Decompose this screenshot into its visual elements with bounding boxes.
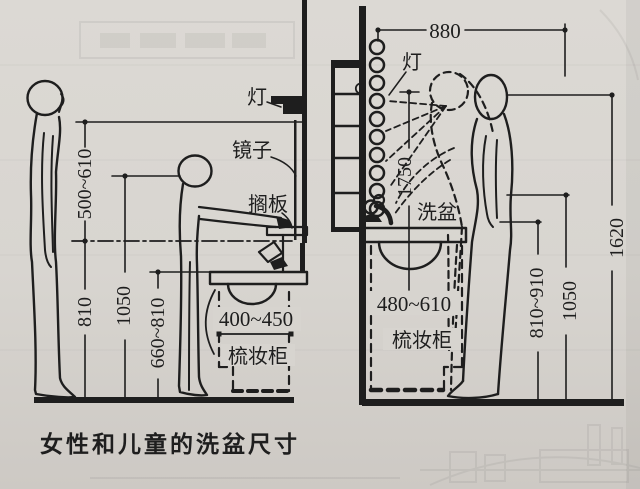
dim-basin-depth: 400~450 [219, 307, 293, 331]
label-shelf: 搁板 [248, 193, 288, 216]
dim-centerline-height: 810 [74, 297, 96, 327]
label-light-left: 灯 [247, 86, 267, 109]
basin-bowl [228, 284, 276, 304]
dim-basin-rim-height: 810~910 [526, 268, 548, 339]
shelf-board [267, 227, 307, 235]
label-cabinet-left: 梳妆柜 [228, 345, 288, 368]
floor-line-right [362, 399, 624, 406]
dim-mirror-height: 1750 [394, 157, 416, 197]
scanned-diagram-page: 500~610 810 1050 660~810 400~450 灯 镜子 搁板… [0, 0, 640, 489]
dim-cabinet-depth: 480~610 [377, 292, 451, 316]
label-light-right: 灯 [402, 51, 422, 74]
dim-child-basin-height: 660~810 [147, 298, 169, 369]
label-mirror: 镜子 [232, 139, 272, 162]
counter-top-right [362, 228, 466, 242]
wall-shelf-rungs [335, 94, 359, 193]
page-edge-shade [626, 0, 640, 489]
wall-section [302, 0, 307, 243]
dim-elbow-height: 1050 [559, 281, 581, 321]
light-bulb-strip [370, 40, 384, 216]
label-cabinet-right: 梳妆柜 [392, 329, 452, 352]
washbasin-dimension-diagram: 500~610 810 1050 660~810 400~450 灯 镜子 搁板… [0, 0, 640, 489]
label-basin: 洗盆 [417, 201, 457, 224]
figure-caption: 女性和儿童的洗盆尺寸 [40, 431, 300, 457]
dim-mirror-strip-width: 880 [429, 19, 461, 43]
dim-child-height: 1050 [113, 286, 135, 326]
dim-eye-to-centerline: 500~610 [74, 149, 96, 220]
dim-eye-height: 1620 [606, 218, 628, 258]
right-diagram [331, 6, 624, 406]
mirror-panel [294, 120, 297, 240]
counter-top [210, 272, 307, 284]
floor-line-left [34, 397, 294, 403]
